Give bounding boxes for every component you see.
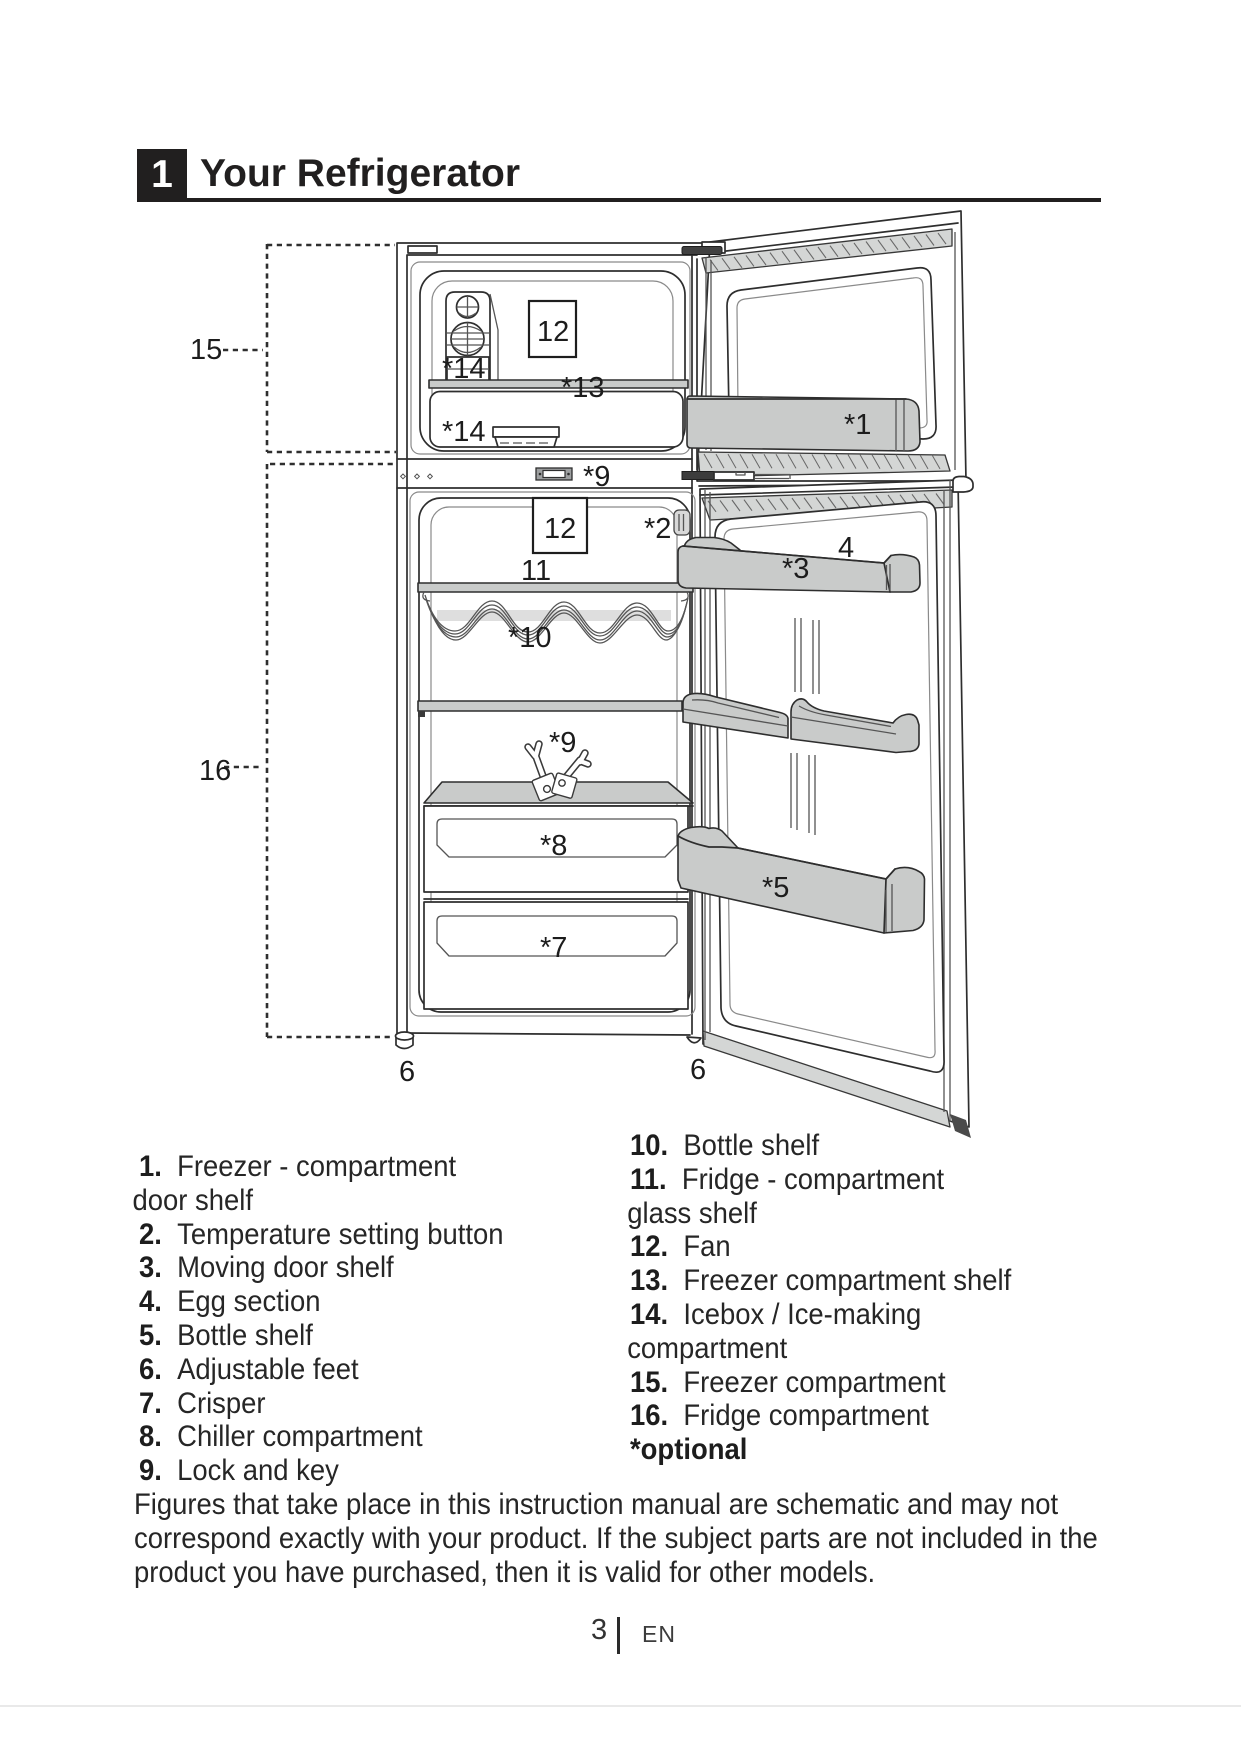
svg-text:*10: *10 [508,622,552,654]
svg-text:12: 12 [537,316,569,348]
svg-text:*9: *9 [549,727,576,759]
svg-text:4: 4 [838,532,854,564]
svg-text:*3: *3 [782,553,809,585]
svg-text:*7: *7 [540,932,567,964]
svg-text:15: 15 [190,334,222,366]
svg-text:*13: *13 [561,372,605,404]
svg-text:16: 16 [199,755,231,787]
svg-text:6: 6 [399,1056,415,1088]
svg-text:*1: *1 [844,409,871,441]
svg-text:12: 12 [544,513,576,545]
svg-text:*5: *5 [762,872,789,904]
svg-text:*2: *2 [644,513,671,545]
svg-text:*8: *8 [540,830,567,862]
svg-text:*14: *14 [442,353,486,385]
svg-text:*9: *9 [583,461,610,493]
svg-text:11: 11 [521,555,551,587]
svg-text:6: 6 [690,1054,706,1086]
svg-text:*14: *14 [442,416,486,448]
